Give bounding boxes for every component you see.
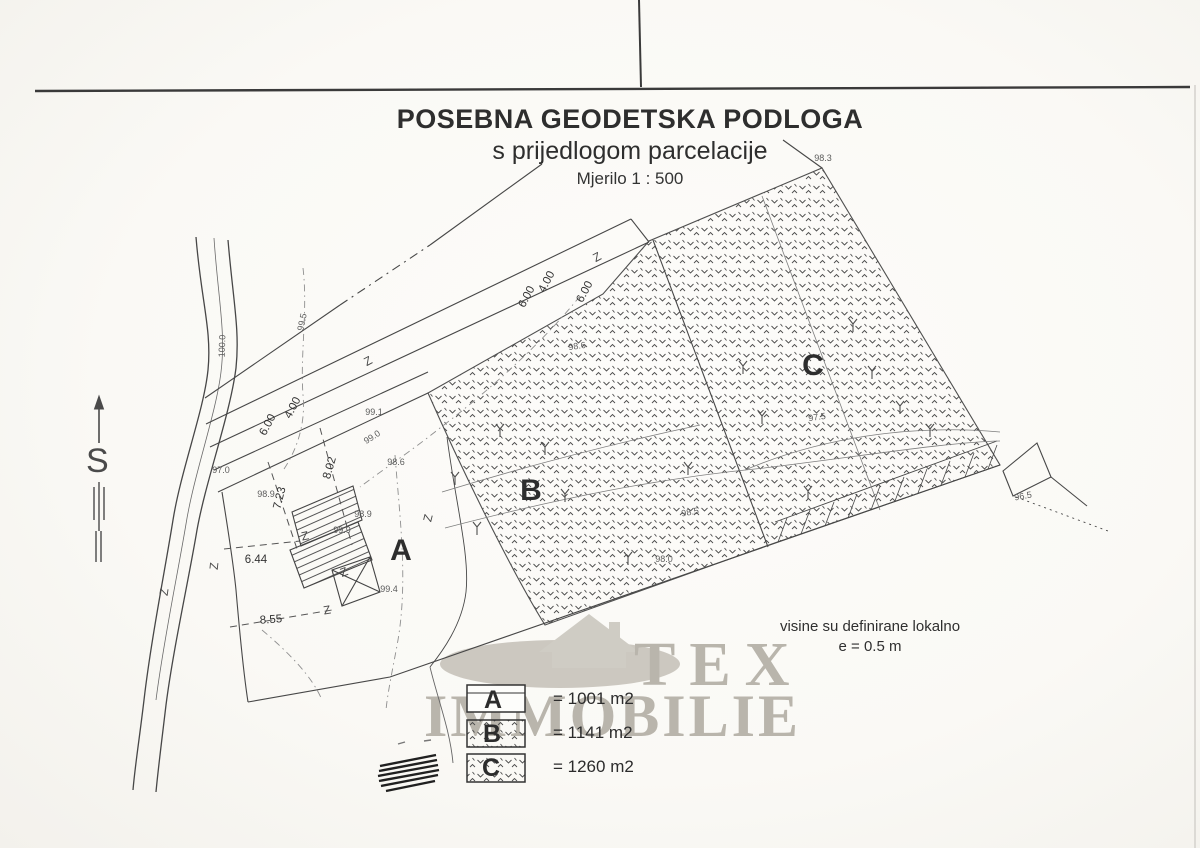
- elevation-label: 99.4: [380, 584, 398, 594]
- legend-letter-a: A: [484, 686, 502, 715]
- tree-icon: [451, 472, 459, 485]
- note-line2: e = 0.5 m: [755, 638, 985, 655]
- scanned-survey-page: TEX IMMOBILIE: [0, 0, 1200, 848]
- fence-mark: Z: [207, 562, 222, 571]
- height-note: visine su definirane lokalno e = 0.5 m: [755, 618, 985, 655]
- tree-icon: [473, 522, 481, 535]
- parcel-label: A: [390, 534, 412, 568]
- note-line1: visine su definirane lokalno: [755, 618, 985, 635]
- stack-stamp-icon: [378, 740, 439, 791]
- elevation-label: 99.1: [365, 407, 383, 417]
- legend-area-c: = 1260 m2: [553, 757, 634, 777]
- page-title: POSEBNA GEODETSKA PODLOGA: [330, 104, 930, 135]
- dimension-label: 8.55: [259, 613, 282, 627]
- legend-letter-b: B: [483, 720, 501, 749]
- elevation-label: 97.0: [212, 465, 230, 475]
- elevation-label: 98.6: [387, 457, 405, 467]
- page-subtitle: s prijedlogom parcelacije: [330, 137, 930, 166]
- parcel-label: B: [520, 474, 542, 508]
- buildings: [290, 486, 380, 606]
- map-scale: Mjerilo 1 : 500: [330, 169, 930, 189]
- title-block: POSEBNA GEODETSKA PODLOGA s prijedlogom …: [330, 104, 930, 189]
- dimension-label: 6.44: [245, 554, 267, 566]
- scan-edge-shadow: [1194, 85, 1196, 848]
- parcel-label: C: [802, 349, 824, 383]
- elevation-label: 99.9: [333, 525, 351, 535]
- legend-area-b: = 1141 m2: [553, 723, 633, 743]
- elevation-label: 100.0: [217, 335, 228, 358]
- elevation-label: 98.3: [814, 153, 832, 163]
- north-label: S: [86, 442, 109, 481]
- elevation-label: 98.9: [354, 509, 372, 519]
- legend-letter-c: C: [482, 754, 500, 783]
- elevation-label: 98.9: [257, 489, 275, 499]
- scan-fold-lines: [35, 0, 1190, 91]
- legend-area-a: = 1001 m2: [553, 689, 634, 709]
- elevation-label: 98.0: [655, 554, 673, 564]
- hatch-region-bc: [428, 168, 1000, 625]
